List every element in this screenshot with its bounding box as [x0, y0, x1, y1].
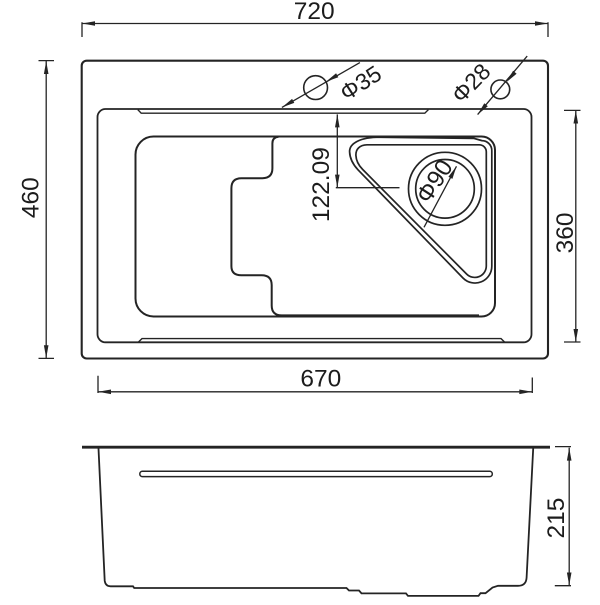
svg-text:460: 460 — [17, 177, 44, 218]
svg-text:670: 670 — [300, 366, 341, 393]
svg-text:122.09: 122.09 — [308, 147, 335, 222]
svg-text:360: 360 — [552, 212, 579, 253]
svg-text:720: 720 — [294, 0, 335, 25]
svg-text:215: 215 — [543, 498, 570, 539]
